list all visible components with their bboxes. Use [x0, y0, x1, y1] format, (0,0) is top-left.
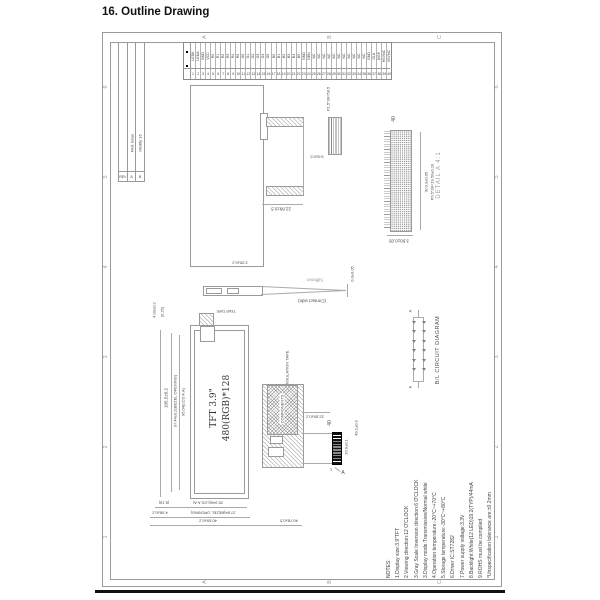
pin-number: 22: [297, 72, 301, 76]
fpc-strip-pad-2: [227, 288, 239, 294]
note-line: 3.Gray Scale Inversion direction:6 O'CLO…: [412, 430, 421, 578]
pin-table-header-column: [184, 43, 191, 79]
pin-number: 28: [327, 72, 331, 76]
pin-symbol: G5: [266, 54, 270, 59]
revision-letter-a: A: [128, 171, 136, 181]
dim-bottom-3: 4.98±0.2: [152, 511, 168, 516]
back-view-outline: [190, 85, 264, 267]
frame-zone-label: A: [202, 580, 208, 584]
pin-number: 39: [382, 72, 386, 76]
pin-number: 36: [367, 72, 371, 76]
fpc-tail-top-edge: [302, 433, 332, 434]
pin-symbol: NC: [342, 53, 346, 58]
note-line: 2.Viewing direction:12 O'CLOCK: [403, 430, 412, 578]
frame-zone-label: 3: [494, 355, 500, 358]
revision-table: REV First Issue A Modify 16 B: [118, 42, 145, 182]
led-symbol: [422, 330, 426, 333]
detail-a-width-dim: 3.50±0.05: [389, 239, 409, 244]
frame-zone-label: 6: [103, 85, 109, 88]
display-size-text: TFT 3.9" 480(RGB)*128: [208, 356, 234, 460]
frame-zone-label: 1: [103, 535, 109, 538]
frame-zone-label: C: [437, 35, 443, 39]
pin-number: 12: [246, 72, 250, 76]
dim-line-bottom-1: [155, 507, 247, 508]
pin-number: 40: [387, 72, 391, 76]
dim-top-1: 4.03±0.2: [152, 302, 157, 318]
pin-symbol: GND: [201, 52, 205, 60]
pin-symbol: NC: [332, 53, 336, 58]
pin-number: 1: [192, 72, 194, 76]
frame-zone-label: C: [437, 580, 443, 584]
pin-symbol: VSYNC: [387, 50, 391, 62]
pin-number: 34: [357, 72, 361, 76]
contact-side-label: (Contact side): [298, 299, 326, 304]
pin-symbol: G3: [256, 54, 260, 59]
frame-zone-label: B: [327, 35, 333, 39]
pin-symbol: GND: [367, 52, 371, 60]
fpc-back-width-dim: 22.89±0.2: [306, 415, 324, 420]
note-line: 5.Storage temperature:-30°C~+80°C: [440, 430, 449, 578]
detail-a-width-dim-line: [387, 235, 413, 236]
connector-pin-count: 40: [327, 420, 333, 426]
pin-symbol: G0: [241, 54, 245, 59]
led-symbol: [412, 359, 416, 362]
led-symbol: [422, 349, 426, 352]
bl-anode-label: A: [408, 310, 413, 313]
insulation-tape-label: INSULATION TAPE: [285, 351, 290, 386]
note-line: 8.Backlight:White(12 LED)19.2(TYP)/44mA: [468, 430, 477, 578]
fpc-tail-bottom-edge: [302, 463, 332, 464]
pin-symbol: B3: [287, 54, 291, 58]
dim-line-bottom-2: [150, 517, 250, 518]
pin-number: 7: [222, 72, 224, 76]
pin-number: 31: [342, 72, 346, 76]
pin1-marker: 1: [330, 467, 332, 472]
pin-symbol: NC: [352, 53, 356, 58]
fpc-back-pad-1: [270, 436, 283, 444]
pin-symbol: R2: [221, 54, 225, 58]
note-line: *Unspecification tolerance are:±0.2mm: [486, 430, 495, 578]
connector-finger-dim: 20.9±0.1: [344, 439, 349, 455]
pin-number: 23: [302, 72, 306, 76]
revision-desc-a: First Issue: [129, 134, 134, 152]
pin-symbol: NC: [322, 53, 326, 58]
pin-symbol: R0: [211, 54, 215, 58]
pin-symbol: B2: [282, 54, 286, 58]
fold-width-dim: 22.89±0.5: [271, 207, 291, 212]
notes-block: NOTES:1.Display size:3.9"TFT2.Viewing di…: [385, 430, 495, 578]
pin-number: 16: [267, 72, 271, 76]
pin-symbol: B1: [277, 54, 281, 58]
tear-tape-label: TEAR TAPE: [216, 309, 235, 313]
frame-zone-label: 5: [494, 175, 500, 178]
pin-number: 32: [347, 72, 351, 76]
pin-number: 3: [202, 72, 204, 76]
pin-number: 33: [352, 72, 356, 76]
pin-symbol: B0: [272, 54, 276, 58]
pin-symbol: G1: [246, 54, 250, 59]
fpc-fold-hatch-top: [266, 117, 304, 127]
pin-number: 18: [277, 72, 281, 76]
bl-top-rail: [413, 317, 424, 318]
note-line: 3.Display mode:Transmissive/Normal white: [422, 430, 431, 578]
revision-row-a: First Issue A: [128, 43, 137, 181]
pin-number: 2: [197, 72, 199, 76]
display-size-line: TFT 3.9": [208, 356, 221, 460]
pin-number: 19: [282, 72, 286, 76]
pin-symbol: LEDK: [191, 51, 195, 60]
led-symbol: [412, 349, 416, 352]
pin-number: 10: [236, 72, 240, 76]
pin-number: 9: [232, 72, 234, 76]
led-symbol: [422, 368, 426, 371]
pin-symbol: CLK: [372, 53, 376, 60]
led-symbol: [412, 330, 416, 333]
fpc-height-dim: 9.0±0.5: [310, 155, 323, 160]
frame-zone-label: B: [327, 580, 333, 584]
dim-line-left-mid: [171, 333, 172, 492]
pin-number: 37: [372, 72, 376, 76]
pin-number: 26: [317, 72, 321, 76]
note-line: 6.Driver IC:ST7282: [449, 430, 458, 578]
fpc-back-pad-2: [268, 447, 284, 457]
frame-zone-label: 3: [103, 355, 109, 358]
dim-bottom-5: 40.69±0.2: [199, 519, 217, 524]
led-symbol: [412, 340, 416, 343]
bl-circuit-title: B/L CIRCUIT DIAGRAM: [435, 316, 441, 384]
detail-a-finger-pitch: P0.5*39=19.50±0.10: [429, 150, 435, 214]
pin-table: LEDK1LEDA2GND3VCC4R05R16R27R38R49R510G01…: [183, 42, 392, 80]
revision-header-label: REV: [119, 171, 127, 181]
pin-number: 21: [292, 72, 296, 76]
pin-number: 5: [212, 72, 214, 76]
pin-symbol: R1: [216, 54, 220, 58]
pin-number: 15: [262, 72, 266, 76]
pin-symbol: NC: [327, 53, 331, 58]
detail-a-dim-line: [420, 132, 421, 230]
dim-active-area-length: 95.04(LCD A.A): [181, 388, 186, 416]
pin-symbol: VCC: [206, 52, 210, 59]
note-line: NOTES:: [385, 430, 394, 578]
pin-symbol: B5: [297, 54, 301, 58]
frame-zone-label: 5: [103, 175, 109, 178]
note-line: 4.Operation temperature:-20°C~+70°C: [431, 430, 440, 578]
dim-bottom-1: (8.18): [159, 501, 169, 506]
fpc-fold-hatch-bottom: [266, 186, 304, 196]
dim-bottom-2: 25.344(LCD A.A): [193, 501, 223, 506]
pin-symbol: G4: [261, 54, 265, 59]
fpc-exit-area: [200, 326, 215, 342]
fpc-thickness-tick: [347, 284, 348, 297]
fpc-strip-pad-1: [206, 288, 222, 294]
components-label: COMPONENTS: [280, 394, 285, 425]
pin-number: 27: [322, 72, 326, 76]
pin-number: 13: [251, 72, 255, 76]
connector-finger-block: [332, 432, 342, 465]
pin-symbol: R3: [226, 54, 230, 58]
bl-anode-stub: [418, 310, 419, 317]
led-symbol: [412, 368, 416, 371]
dim-line-bottom-3: [150, 525, 302, 526]
led-string-1: [410, 321, 418, 371]
pin-symbol: DISP: [377, 52, 381, 60]
note-line: 1.Display size:3.9"TFT: [394, 430, 403, 578]
pin-number: 38: [377, 72, 381, 76]
footer-bar: [95, 590, 505, 593]
led-symbol: [422, 321, 426, 324]
detail-a-finger-block: [390, 130, 412, 232]
dim-top-2: (5.25): [160, 307, 165, 317]
fpc-pitch-dim: P1.5*39=58.5: [326, 87, 331, 111]
page-title: 16. Outline Drawing: [102, 6, 209, 18]
bl-cathode-stub: [418, 381, 419, 388]
dim-line-left-outer: [160, 330, 161, 497]
revision-desc-b: Modify 16: [138, 134, 143, 151]
pin-symbol: HSYNC: [382, 50, 386, 62]
revision-letter-b: B: [136, 171, 144, 181]
led-symbol: [422, 340, 426, 343]
led-string-2: [420, 321, 428, 371]
pin-symbol: NC: [337, 53, 341, 58]
pin-number: 14: [256, 72, 260, 76]
pin-number: 11: [242, 72, 246, 76]
frame-zone-label: 4: [494, 265, 500, 268]
fpc-connector-end: [328, 117, 342, 155]
pin-symbol: R4: [231, 54, 235, 58]
fpc-thickness-dim: 0.3±0.05: [350, 266, 355, 282]
revision-row-b: Modify 16 B: [136, 43, 144, 181]
led-symbol: [412, 321, 416, 324]
frame-zone-label: A: [202, 35, 208, 39]
detail-ref-label: A: [341, 470, 344, 476]
frame-zone-label: 2: [103, 445, 109, 448]
pin-symbol: G2: [251, 54, 255, 59]
bl-cathode-label: K: [408, 386, 413, 389]
pin-symbol: DEN: [307, 52, 311, 59]
pin-number: 29: [332, 72, 336, 76]
fpc-fold-edge: [303, 118, 304, 194]
revision-header-column: REV: [119, 43, 128, 181]
dim-bezel-opening-length: 97.44±0.2(BEZEL OPENING): [173, 375, 178, 428]
pin-number: 20: [287, 72, 291, 76]
detail-a-title: DETAIL A 4:1: [436, 151, 442, 198]
pin-symbol: NC: [362, 53, 366, 58]
dim-bottom-6: 46.78±0.5: [280, 519, 298, 524]
pin-symbol: LEDA: [196, 51, 200, 60]
pin-number: 30: [337, 72, 341, 76]
stiffener-label: Stiffener: [307, 278, 324, 283]
display-resolution-line: 480(RGB)*128: [221, 356, 234, 460]
note-line: 9.ROHS must be complied: [477, 430, 486, 578]
pin-number: 25: [312, 72, 316, 76]
pin-symbol: GND: [302, 52, 306, 60]
pin-number: 8: [227, 72, 229, 76]
pin-number: 4: [207, 72, 209, 76]
frame-zone-label: 6: [494, 85, 500, 88]
pin-number: 35: [362, 72, 366, 76]
pin-symbol: NC: [357, 53, 361, 58]
pin-symbol: NC: [347, 53, 351, 58]
detail-a-finger-dims: W:0.3±0.05 P0.5*39=19.50±0.10: [424, 150, 435, 214]
frame-zone-label: 4: [103, 265, 109, 268]
note-line: 7.Power supply voltage:3.3V: [458, 430, 467, 578]
pin-number: 6: [217, 72, 219, 76]
pin-symbol: NC: [317, 53, 321, 58]
fpc-back-width-dim-line: [302, 412, 330, 413]
pin-number: 17: [272, 72, 276, 76]
led-symbol: [422, 359, 426, 362]
dim-module-length: 105.5±0.2: [164, 388, 169, 408]
fold-dim-line: [262, 204, 303, 205]
detail-a-pin-count: 40: [391, 116, 397, 122]
pin-symbol: B4: [292, 54, 296, 58]
pin-cell: VSYNC40: [387, 43, 391, 79]
dim-bottom-4: 27.84(BEZEL OPENING): [191, 511, 236, 516]
fpc-width-dim: 2.95±0.2: [232, 261, 248, 266]
pin-number: 24: [307, 72, 311, 76]
dim-line-left-inner: [179, 335, 180, 490]
pin-symbol: NC: [312, 53, 316, 58]
fpc-length-dim: 49.1±0.3: [354, 420, 359, 436]
pin-table-cells: LEDK1LEDA2GND3VCC4R05R16R27R38R49R510G01…: [191, 43, 391, 79]
pin-table-divider: [183, 68, 390, 69]
pin-symbol: R5: [236, 54, 240, 58]
datasheet-page: 16. Outline Drawing ABCABC654321654321 L…: [0, 0, 600, 600]
